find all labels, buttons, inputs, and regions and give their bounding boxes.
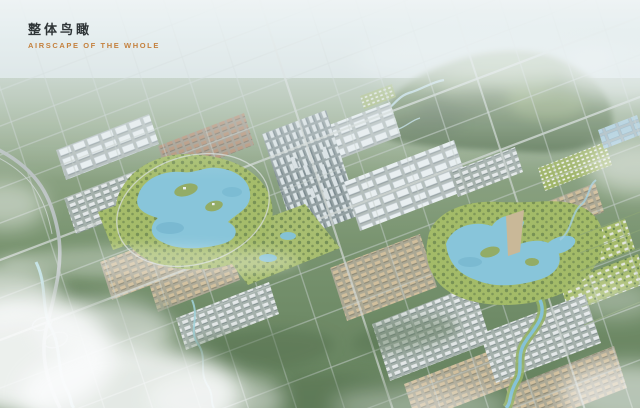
page-subtitle: AIRSCAPE OF THE WHOLE	[28, 41, 160, 50]
title-block: 整体鸟瞰 AIRSCAPE OF THE WHOLE	[28, 19, 160, 50]
page-title: 整体鸟瞰	[28, 19, 160, 38]
aerial-rendering: 整体鸟瞰 AIRSCAPE OF THE WHOLE	[0, 0, 640, 408]
rendering-scene	[0, 0, 640, 408]
cool-tint	[0, 0, 640, 408]
